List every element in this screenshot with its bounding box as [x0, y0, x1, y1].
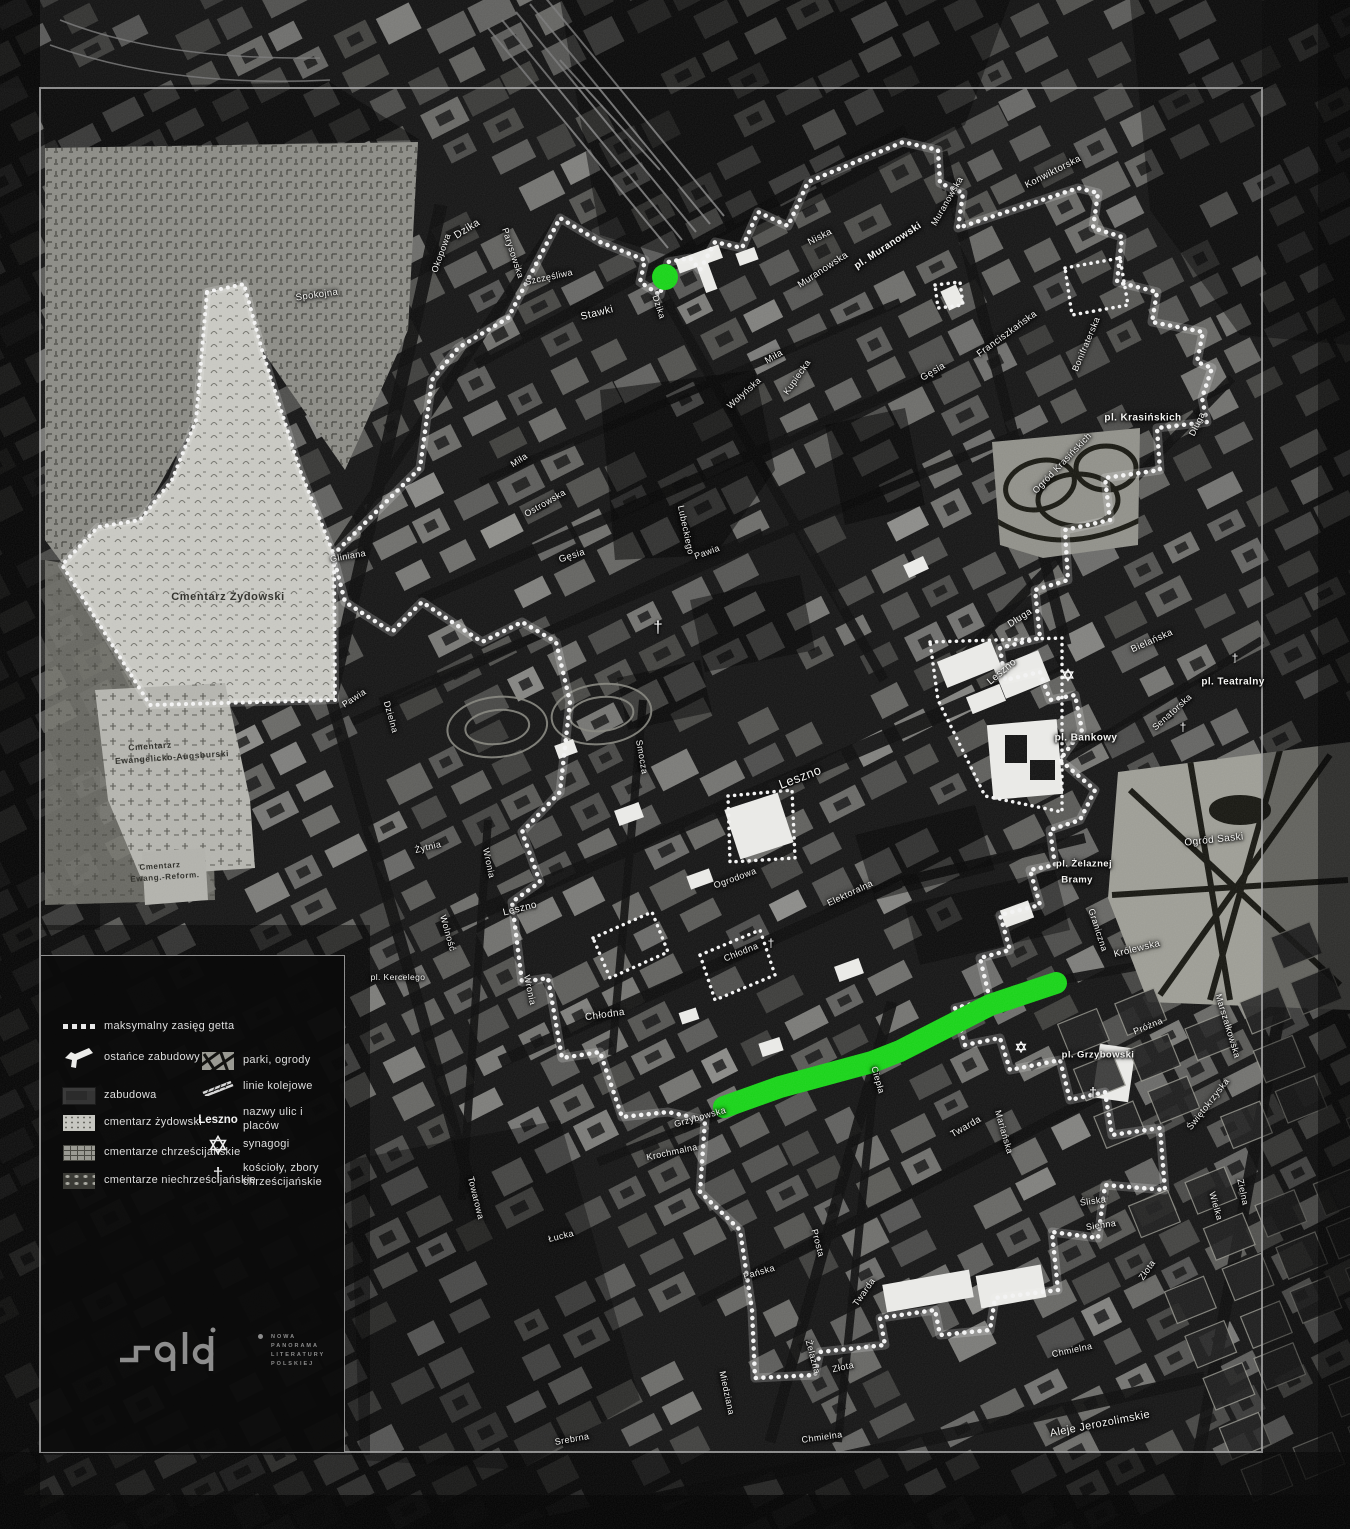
legend-item-churches: † kościoły, zbory chrześcijańskie — [201, 1162, 338, 1190]
christian-cemeteries-swatch — [62, 1145, 96, 1161]
church-cross-icon: † — [201, 1165, 235, 1187]
legend-item-buildings: zabudowa — [62, 1087, 157, 1105]
logo-line: NOWA — [271, 1334, 325, 1340]
logo-line: PANORAMA — [271, 1343, 325, 1349]
legend-label: synagogi — [243, 1138, 289, 1152]
railways-swatch — [201, 1078, 235, 1096]
legend-item-street-names: Leszno nazwy ulic i placów — [201, 1106, 338, 1134]
legend-item-railways: linie kolejowe — [201, 1078, 313, 1096]
remnant-buildings-icon — [62, 1044, 96, 1072]
legend-item-parks: parki, ogrody — [201, 1052, 311, 1070]
legend-label: zabudowa — [104, 1089, 157, 1103]
legend-item-synagogues: synagogi — [201, 1135, 289, 1155]
logo-line: POLSKIEJ — [271, 1361, 325, 1367]
ghetto-map-stage: DzikaOkopowaSpokojnaParysowskaSzczęśliwa… — [0, 0, 1350, 1529]
legend-item-remnant-buildings: ostańce zabudowy — [62, 1044, 200, 1072]
buildings-swatch — [62, 1087, 96, 1105]
legend-label: cmentarz żydowski — [104, 1116, 202, 1130]
legend-label: kościoły, zbory chrześcijańskie — [243, 1162, 338, 1190]
logo-line: LITERATURY — [271, 1352, 325, 1358]
logo-dot — [258, 1334, 263, 1339]
legend-item-jewish-cemetery: cmentarz żydowski — [62, 1115, 202, 1131]
synagogue-star-icon — [201, 1135, 235, 1155]
legend-label: ostańce zabudowy — [104, 1051, 200, 1065]
parks-swatch — [201, 1052, 235, 1070]
legend-panel: maksymalny zasięg getta ostańce zabudowy… — [40, 955, 345, 1453]
non-christian-cemeteries-swatch — [62, 1173, 96, 1189]
legend-label: parki, ogrody — [243, 1054, 311, 1068]
nplp-logo-glyphs — [117, 1324, 252, 1376]
street-name-sample: Leszno — [201, 1114, 235, 1126]
logo-wordmark: NOWA PANORAMA LITERATURY POLSKIEJ — [271, 1334, 325, 1367]
jewish-cemetery-swatch — [62, 1115, 96, 1131]
legend-label: nazwy ulic i placów — [243, 1106, 338, 1134]
legend-item-ghetto-extent: maksymalny zasięg getta — [62, 1020, 234, 1034]
ghetto-extent-swatch — [62, 1024, 96, 1029]
legend-label: linie kolejowe — [243, 1080, 313, 1094]
nplp-logo: NOWA PANORAMA LITERATURY POLSKIEJ — [117, 1324, 325, 1376]
legend-label: maksymalny zasięg getta — [104, 1020, 234, 1034]
